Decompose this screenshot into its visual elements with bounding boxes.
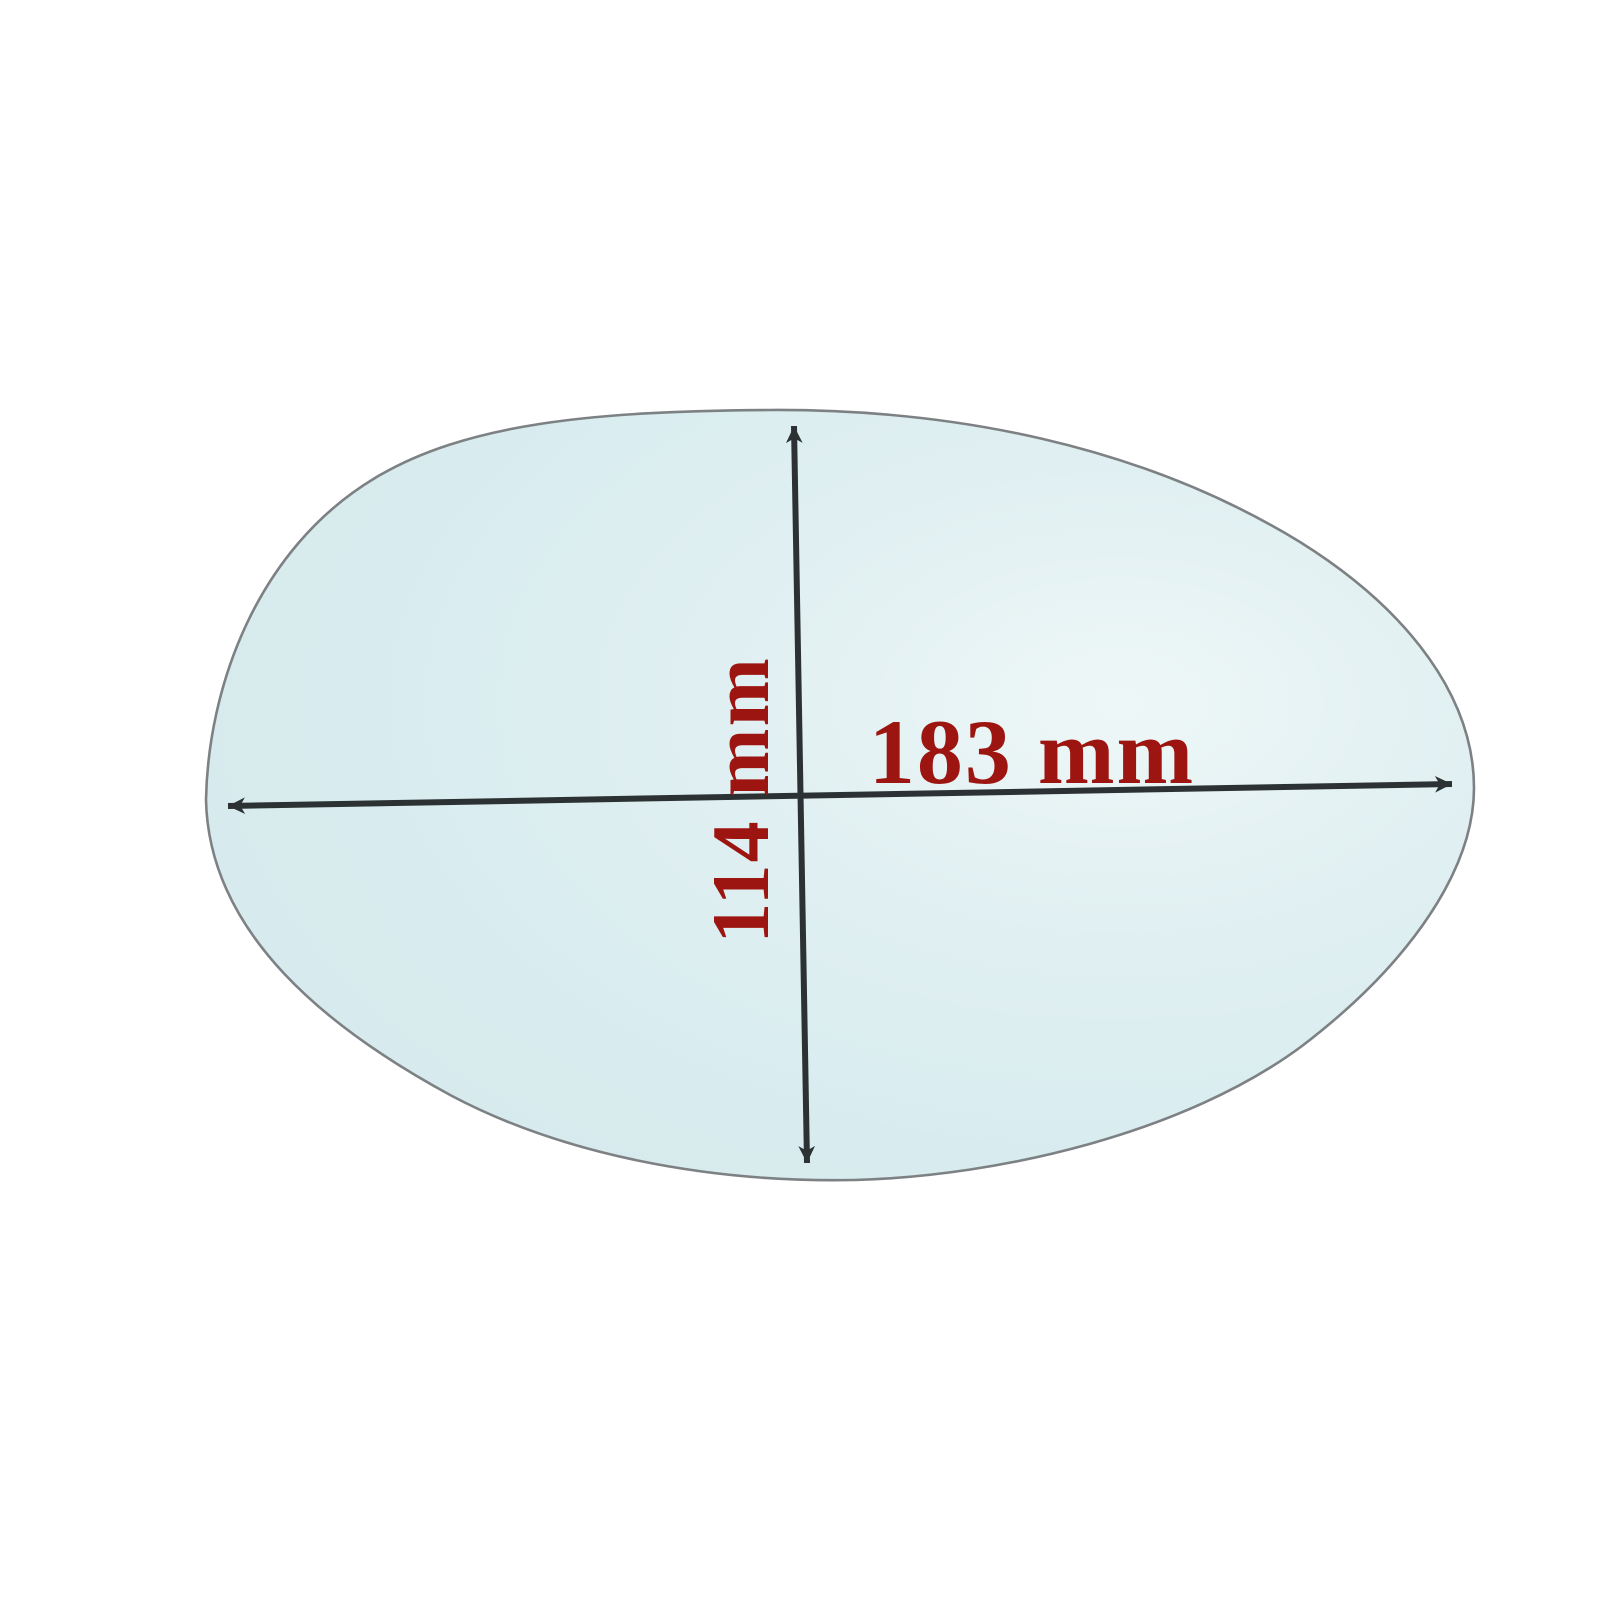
mirror-glass-diagram: 183 mm 114 mm xyxy=(0,0,1600,1600)
height-dimension-label: 114 mm xyxy=(695,656,786,944)
product-dimension-image: 183 mm 114 mm xyxy=(0,0,1600,1600)
width-dimension-label: 183 mm xyxy=(869,701,1195,803)
